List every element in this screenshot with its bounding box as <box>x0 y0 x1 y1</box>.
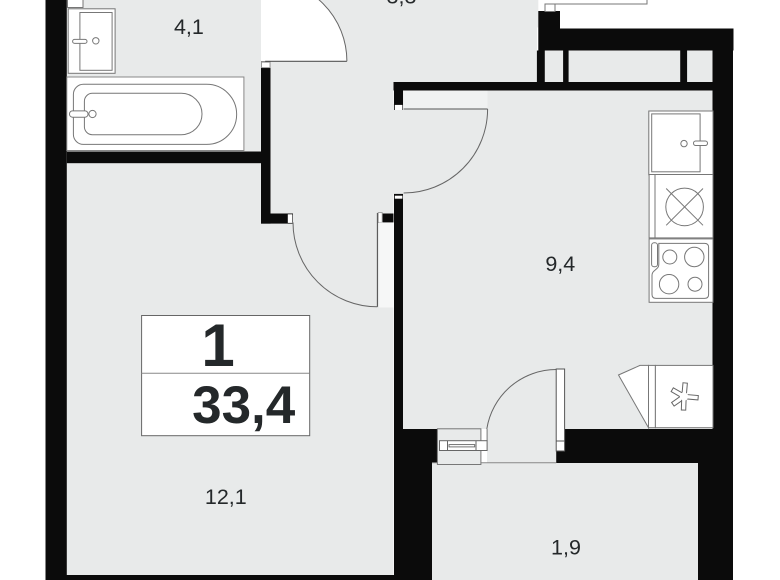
svg-text:9,4: 9,4 <box>545 252 575 276</box>
svg-text:4,1: 4,1 <box>174 15 204 39</box>
svg-text:33,4: 33,4 <box>192 376 296 435</box>
svg-text:12,1: 12,1 <box>205 485 247 509</box>
svg-text:3,3: 3,3 <box>387 0 417 9</box>
svg-text:1: 1 <box>201 312 234 379</box>
svg-text:1,9: 1,9 <box>551 536 581 560</box>
